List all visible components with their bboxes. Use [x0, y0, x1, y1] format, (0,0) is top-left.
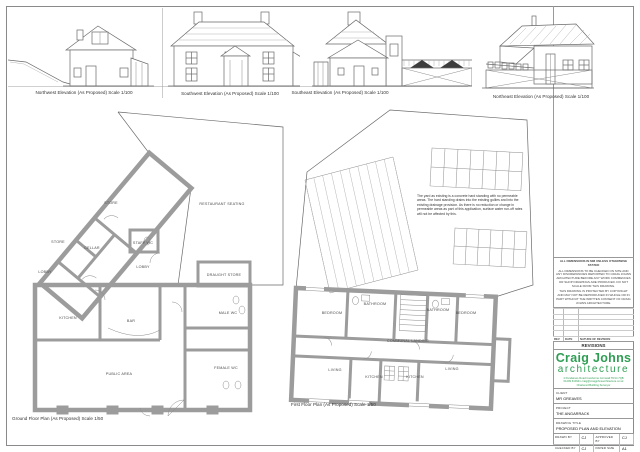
rev-column-header: REV [553, 336, 564, 342]
project-value: THE ANGARRACK [556, 411, 631, 416]
elevation-caption: Northwest Elevation (As Proposed) Scale … [35, 90, 132, 95]
client-section: CLIENT MR GREAVES [553, 389, 634, 404]
room-label-restaurant-seating: RESTAURANT SEATING [199, 202, 244, 206]
northeast-elevation-drawing [482, 14, 597, 94]
ground-floor-plan-drawing [28, 98, 288, 423]
room-label-store-2: STORE [51, 240, 65, 244]
drawing-title-label: DRAWING TITLE [556, 421, 631, 425]
room-label-living: LIVING [328, 368, 341, 372]
room-label-kitchen: KITCHEN [59, 316, 77, 320]
approved-by-label: APPROVED BY [594, 434, 621, 444]
room-label-public-area: PUBLIC AREA [106, 372, 132, 376]
checked-by-value: CJ [580, 444, 594, 452]
first-floor-caption: First Floor Plan (As Proposed) Scale 1/5… [291, 402, 376, 407]
project-section: PROJECT THE ANGARRACK [553, 404, 634, 419]
drawn-by-value: CJ [580, 434, 594, 444]
elevation-caption: Northeast Elevation (As Proposed) Scale … [493, 94, 589, 99]
logo-name: Craig Johns [553, 352, 634, 365]
elevation-panel-divider [162, 8, 163, 98]
room-label-bathroom-2: BATHROOM [427, 308, 450, 312]
drawing-title-section: DRAWING TITLE PROPOSED PLAN AND ELEVATIO… [553, 419, 634, 434]
notes-paragraph-1: ALL DIMENSIONS TO BE CHECKED ON SITE AND… [556, 270, 631, 289]
room-label-male-wc: MALE WC [219, 311, 238, 315]
notes-header: ALL DIMENSIONS IN MM UNLESS OTHERWISE ST… [556, 260, 631, 268]
room-label-bedroom-2: BEDROOM [456, 311, 476, 315]
room-label-lobby: LOBBY [38, 270, 51, 274]
project-label: PROJECT [556, 406, 631, 410]
southwest-elevation-drawing [166, 10, 300, 90]
room-label-bathroom: BATHROOM [364, 302, 387, 306]
revisions-title: REVISIONS [553, 342, 634, 350]
drawn-by-label: DRAWN BY [553, 434, 580, 444]
room-label-bar: BAR [127, 319, 135, 323]
checked-by-label: CHECKED BY [553, 444, 580, 452]
drawing-title-value: PROPOSED PLAN AND ELEVATION [556, 426, 631, 431]
room-label-kitchen-2: KITCHEN [406, 375, 424, 379]
room-label-living-2: LIVING [445, 367, 458, 371]
general-notes: ALL DIMENSIONS IN MM UNLESS OTHERWISE ST… [553, 258, 634, 308]
notes-paragraph-2: THIS DRAWING IS PROTECTED BY COPYRIGHT A… [556, 290, 631, 305]
room-label-lobby-2: LOBBY [136, 265, 149, 269]
southeast-elevation-drawing [312, 8, 472, 90]
room-label-cellar: CELLAR [84, 246, 100, 250]
room-label-draught-store: DRAUGHT STORE [207, 273, 241, 277]
drainage-note: The yard as existing is a concrete hard … [417, 194, 523, 216]
logo-subtitle: architecture [553, 365, 634, 376]
first-floor-plan-drawing [288, 100, 538, 412]
date-column-header: DATE [564, 336, 579, 342]
paper-size-label: PAPER SIZE [594, 444, 621, 452]
nature-column-header: NATURE OF REVISION [579, 336, 634, 342]
approved-by-value: CJ [620, 434, 634, 444]
title-block: ALL DIMENSIONS IN MM UNLESS OTHERWISE ST… [553, 257, 634, 446]
elevation-caption: Southeast Elevation (As Proposed) Scale … [291, 90, 388, 95]
client-value: MR GREAVES [556, 396, 631, 401]
room-label-kitchen-1: KITCHEN [365, 375, 383, 379]
practice-tagline: Chartered Building Surveyor [553, 384, 634, 388]
client-label: CLIENT [556, 391, 631, 395]
practice-logo: Craig Johns architecture 4 Pendarves Roa… [553, 350, 634, 389]
room-label-bedroom: BEDROOM [322, 311, 342, 315]
room-label-store: STORE [104, 201, 118, 205]
room-label-communal-landing: COMMUNAL LANDING [387, 339, 429, 343]
room-label-female-wc: FEMALE WC [214, 366, 238, 370]
paper-size-value: A1 [620, 444, 634, 452]
approval-grid: DRAWN BY CJ APPROVED BY CJ CHECKED BY CJ… [553, 434, 634, 452]
revision-table: REV DATE NATURE OF REVISION [553, 308, 634, 342]
drawing-sheet: Northwest Elevation (As Proposed) Scale … [0, 0, 640, 452]
room-label-staff-wc: STAFF WC [133, 241, 153, 245]
northwest-elevation-drawing [8, 10, 158, 90]
elevation-caption: Southwest Elevation (As Proposed) Scale … [181, 91, 279, 96]
ground-floor-caption: Ground Floor Plan (As Proposed) Scale 1/… [12, 416, 103, 421]
